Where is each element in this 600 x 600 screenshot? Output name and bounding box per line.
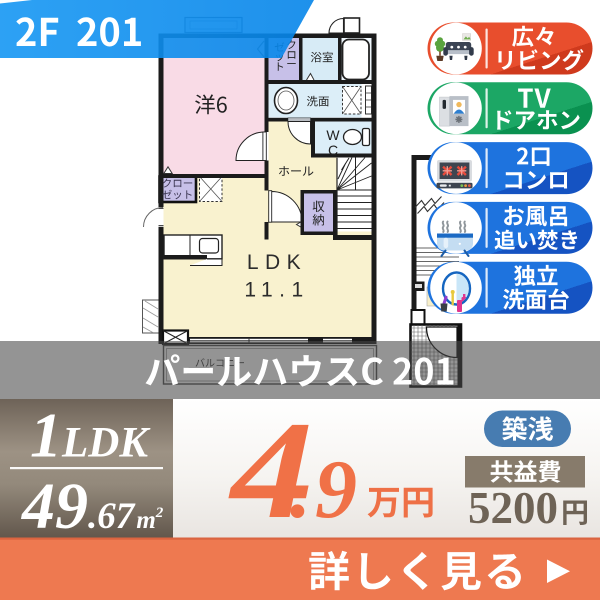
svg-text:W: W [326,127,340,143]
svg-text:C: C [328,142,338,158]
svg-text:5200: 5200 [468,483,558,533]
svg-text:11.1: 11.1 [244,279,309,302]
svg-text:LDK: LDK [247,251,307,274]
svg-text:.9: .9 [290,443,361,536]
